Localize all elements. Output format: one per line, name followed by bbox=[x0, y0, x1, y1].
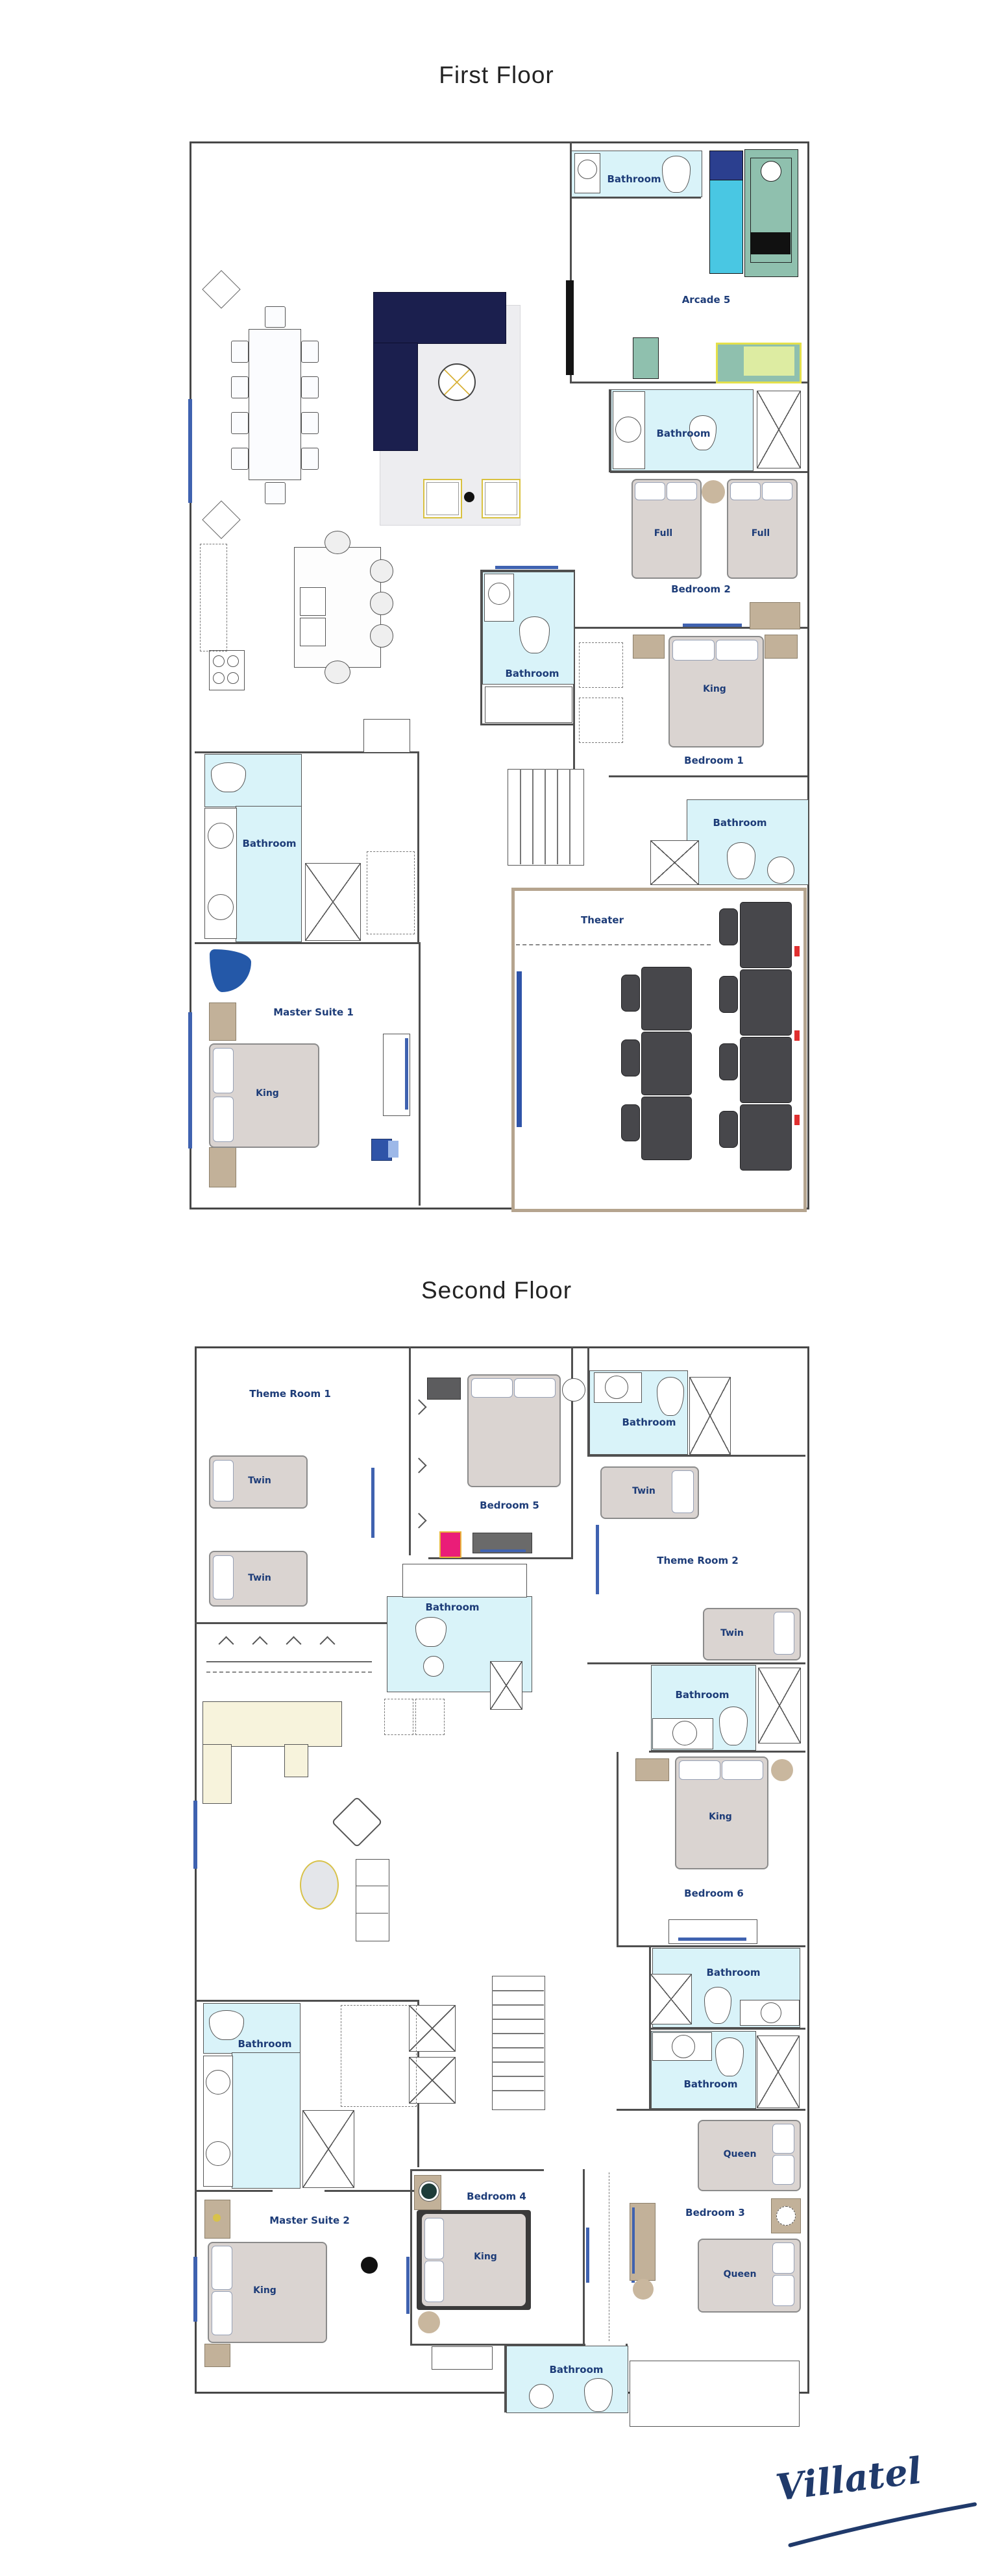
sconce bbox=[794, 1115, 800, 1125]
room-label-bathroom: Bathroom bbox=[425, 1601, 479, 1613]
room-label-theme-room-2: Theme Room 2 bbox=[657, 1555, 739, 1566]
pillow bbox=[424, 2261, 444, 2302]
wall bbox=[583, 2169, 585, 2344]
theater-seat bbox=[641, 1097, 692, 1160]
media-wall bbox=[566, 280, 574, 375]
desk-chair-arm bbox=[388, 1141, 398, 1158]
dartboard-icon bbox=[776, 2206, 796, 2226]
dryer bbox=[415, 1699, 445, 1735]
window bbox=[188, 399, 192, 503]
sofa bbox=[356, 1859, 389, 1941]
window bbox=[193, 1801, 197, 1869]
tv-strip bbox=[632, 2207, 635, 2274]
stair-tread bbox=[492, 2047, 544, 2048]
dining-chair bbox=[301, 341, 319, 363]
theater-seat bbox=[740, 1037, 792, 1103]
wall bbox=[410, 2169, 544, 2171]
bed-label-full: Full bbox=[752, 528, 770, 539]
closet-shelf bbox=[206, 1661, 372, 1662]
sink-icon bbox=[615, 417, 641, 443]
toilet-icon bbox=[704, 1987, 731, 2024]
dining-chair bbox=[265, 482, 286, 504]
tv-strip bbox=[480, 1549, 526, 1552]
loft-structure bbox=[284, 1744, 308, 1777]
theater-headrest bbox=[719, 1111, 738, 1148]
bathtub bbox=[485, 687, 572, 723]
pillow bbox=[772, 2155, 794, 2185]
stair-tread bbox=[492, 2004, 544, 2006]
dining-table bbox=[249, 329, 301, 480]
walk-in-closet bbox=[367, 851, 415, 934]
wall bbox=[609, 775, 807, 777]
dresser bbox=[635, 1758, 669, 1781]
stair-tread bbox=[492, 2090, 544, 2091]
room-label-bedroom-3: Bedroom 3 bbox=[685, 2207, 745, 2218]
dining-chair bbox=[231, 412, 249, 434]
pillow bbox=[213, 1048, 234, 1093]
tv-strip bbox=[678, 1938, 746, 1941]
room-label-bathroom: Bathroom bbox=[713, 817, 766, 829]
wall bbox=[195, 2000, 419, 2002]
bed-label-twin: Twin bbox=[632, 1486, 656, 1496]
bed-label-full: Full bbox=[654, 528, 672, 539]
pillow bbox=[672, 1470, 694, 1513]
oval-rug bbox=[300, 1860, 339, 1910]
sconce bbox=[794, 946, 800, 956]
floorplan-page: { "brand": { "logo_text": "Villatel" }, … bbox=[0, 0, 993, 2576]
shower-icon bbox=[302, 2110, 354, 2188]
theater-seat bbox=[740, 902, 792, 968]
loft-structure bbox=[202, 1744, 232, 1804]
room-label-bathroom: Bathroom bbox=[675, 1689, 729, 1701]
first-floor-title: First Floor bbox=[439, 62, 554, 89]
pillow bbox=[471, 1378, 513, 1398]
pillow bbox=[730, 482, 761, 500]
dresser bbox=[750, 602, 800, 629]
room-label-bathroom: Bathroom bbox=[656, 428, 710, 439]
shower-icon bbox=[757, 2035, 800, 2108]
stair-tread bbox=[492, 2019, 544, 2020]
bar-stool bbox=[370, 592, 393, 615]
theater-screen bbox=[517, 971, 522, 1127]
stair-tread bbox=[492, 2033, 544, 2034]
brand-logo: Villatel bbox=[769, 2445, 990, 2555]
wall bbox=[649, 1751, 805, 1753]
counter bbox=[200, 544, 227, 651]
loft-structure bbox=[202, 1701, 342, 1747]
nightstand bbox=[209, 1002, 236, 1041]
toilet-icon bbox=[662, 156, 691, 193]
stair-tread bbox=[492, 1990, 544, 1991]
bar-stool bbox=[325, 531, 350, 554]
theater-headrest bbox=[719, 1043, 738, 1080]
brand-logo-text: Villatel bbox=[774, 2449, 924, 2510]
dining-chair bbox=[265, 306, 286, 328]
room-label-bedroom-4: Bedroom 4 bbox=[467, 2191, 526, 2202]
pillow bbox=[772, 2124, 794, 2154]
shower-icon bbox=[650, 1974, 692, 2024]
nightstand bbox=[209, 1147, 236, 1187]
sink-icon bbox=[206, 2070, 230, 2095]
closet bbox=[579, 698, 623, 743]
sink-icon bbox=[605, 1376, 628, 1399]
round-rug bbox=[418, 2311, 440, 2333]
sink-icon bbox=[208, 823, 234, 849]
sectional-sofa bbox=[373, 343, 418, 451]
bed-label-king: King bbox=[474, 2252, 497, 2262]
wall bbox=[195, 1622, 389, 1624]
walk-in-closet bbox=[341, 2005, 417, 2107]
sink-icon bbox=[423, 1656, 444, 1677]
pillow bbox=[213, 1097, 234, 1142]
toilet-icon bbox=[519, 616, 550, 653]
pillow bbox=[679, 1760, 720, 1780]
wall bbox=[617, 1752, 619, 1945]
tv-strip bbox=[495, 566, 558, 569]
burner-icon bbox=[227, 672, 239, 684]
bar-stool bbox=[370, 624, 393, 648]
pillow bbox=[212, 2291, 232, 2335]
room-label-theme-room-1: Theme Room 1 bbox=[249, 1388, 331, 1400]
shower-icon bbox=[689, 1377, 731, 1455]
theater-seat bbox=[641, 1032, 692, 1095]
ottoman bbox=[482, 479, 521, 518]
pillow bbox=[672, 640, 715, 661]
sink-icon bbox=[761, 2002, 781, 2023]
window bbox=[193, 2257, 197, 2322]
wall bbox=[195, 942, 421, 944]
room-label-bathroom: Bathroom bbox=[706, 1967, 760, 1978]
island-sink bbox=[300, 618, 326, 646]
pillow bbox=[774, 1612, 794, 1655]
tv-strip bbox=[405, 1038, 408, 1110]
nightstand bbox=[765, 635, 798, 659]
arcade-machine bbox=[709, 151, 743, 181]
room-label-bathroom: Bathroom bbox=[238, 2038, 291, 2050]
master-bathroom-1 bbox=[236, 806, 302, 942]
wall bbox=[480, 723, 575, 725]
bar-stool bbox=[325, 661, 350, 684]
pillow bbox=[514, 1378, 556, 1398]
room-label-master-suite-1: Master Suite 1 bbox=[273, 1006, 354, 1018]
round-table bbox=[771, 1759, 793, 1781]
bed-label-twin: Twin bbox=[248, 1476, 271, 1486]
round-rug bbox=[702, 480, 725, 504]
dining-chair bbox=[231, 341, 249, 363]
shower-icon bbox=[758, 1668, 801, 1744]
wall bbox=[617, 2109, 805, 2111]
toilet-icon bbox=[211, 762, 246, 792]
shower-icon bbox=[650, 840, 699, 885]
wall bbox=[649, 2028, 805, 2030]
accent-dresser bbox=[439, 1531, 461, 1558]
theater-headrest bbox=[621, 1039, 640, 1076]
sofa-seam bbox=[356, 1886, 388, 1886]
wall bbox=[417, 751, 419, 943]
toilet-icon bbox=[584, 2378, 613, 2412]
wall bbox=[587, 1455, 805, 1457]
wall bbox=[325, 2190, 419, 2192]
stair-tread bbox=[520, 769, 521, 864]
round-rug bbox=[633, 2279, 654, 2300]
side-table bbox=[562, 1378, 585, 1402]
theater-seat bbox=[641, 967, 692, 1030]
breakfast-nook bbox=[363, 719, 410, 753]
tv-strip bbox=[596, 1525, 599, 1594]
sectional-sofa bbox=[373, 292, 506, 344]
shower-icon bbox=[757, 391, 801, 468]
game-table-band bbox=[750, 232, 791, 254]
entry-porch bbox=[630, 2361, 800, 2427]
wall bbox=[610, 471, 807, 473]
toilet-icon bbox=[715, 2037, 744, 2076]
stair-tread bbox=[492, 2076, 544, 2077]
lamp-icon bbox=[213, 2214, 221, 2222]
toilet-icon bbox=[209, 2010, 244, 2040]
bed-label-queen: Queen bbox=[724, 2149, 757, 2159]
second-floor-title: Second Floor bbox=[421, 1277, 572, 1304]
theater-headrest bbox=[621, 975, 640, 1012]
room-label-bedroom-6: Bedroom 6 bbox=[684, 1888, 744, 1899]
stair-tread bbox=[569, 769, 570, 864]
room-label-bathroom: Bathroom bbox=[242, 838, 296, 849]
dining-chair bbox=[301, 448, 319, 470]
wall bbox=[410, 2169, 412, 2344]
arcade-cabinet bbox=[633, 337, 659, 379]
tv-strip bbox=[683, 624, 742, 627]
toilet-icon bbox=[727, 842, 755, 879]
stair-tread bbox=[557, 769, 558, 864]
closet-divider bbox=[609, 2172, 609, 2341]
room-label-bedroom-1: Bedroom 1 bbox=[684, 755, 744, 766]
tv-strip bbox=[586, 2228, 589, 2283]
pillow bbox=[772, 2275, 794, 2306]
linen-closet bbox=[490, 1661, 522, 1710]
room-label-bathroom: Bathroom bbox=[549, 2364, 603, 2376]
speaker-icon bbox=[419, 2181, 439, 2201]
room-label-bathroom: Bathroom bbox=[683, 2078, 737, 2090]
sink-icon bbox=[767, 857, 794, 884]
wall bbox=[195, 2190, 273, 2192]
burner-icon bbox=[213, 655, 225, 667]
dining-chair bbox=[301, 412, 319, 434]
theater-headrest bbox=[719, 976, 738, 1013]
wall bbox=[571, 197, 701, 199]
toilet-icon bbox=[415, 1617, 447, 1647]
pillow bbox=[635, 482, 665, 500]
stair-tread bbox=[532, 769, 533, 864]
theater-headrest bbox=[621, 1104, 640, 1141]
room-label-master-suite-2: Master Suite 2 bbox=[269, 2215, 350, 2226]
dining-chair bbox=[231, 448, 249, 470]
wall bbox=[587, 1662, 805, 1664]
game-pad-inner bbox=[744, 346, 794, 376]
brand-logo-underline bbox=[785, 2501, 981, 2551]
bed-label-king: King bbox=[256, 1088, 279, 1099]
sink-icon bbox=[672, 1721, 697, 1745]
theater-seat bbox=[740, 969, 792, 1036]
sink-icon bbox=[206, 2141, 230, 2166]
sink-icon bbox=[529, 2384, 554, 2409]
pillow bbox=[667, 482, 697, 500]
bed-label-king: King bbox=[709, 1812, 732, 1822]
room-label-bedroom-5: Bedroom 5 bbox=[480, 1500, 539, 1511]
sink-icon bbox=[488, 583, 510, 605]
wall bbox=[419, 942, 421, 1206]
tv-console bbox=[427, 1378, 461, 1400]
pillow bbox=[762, 482, 792, 500]
sofa-seam bbox=[356, 1913, 388, 1914]
room-label-bedroom-2: Bedroom 2 bbox=[671, 583, 731, 595]
island-sink bbox=[300, 587, 326, 616]
game-table-light bbox=[761, 161, 781, 182]
side-table bbox=[464, 492, 474, 502]
toilet-icon bbox=[719, 1707, 748, 1745]
bed-label-twin: Twin bbox=[248, 1573, 271, 1583]
bed-label-king: King bbox=[253, 2285, 276, 2296]
bed-label-queen: Queen bbox=[724, 2269, 757, 2279]
floor-lamp bbox=[361, 2257, 378, 2274]
sconce bbox=[794, 1030, 800, 1041]
bar-stool bbox=[370, 559, 393, 583]
bathtub bbox=[402, 1564, 527, 1598]
pillow bbox=[722, 1760, 763, 1780]
bed-label-king: King bbox=[703, 684, 726, 694]
room-label-theater: Theater bbox=[581, 914, 624, 926]
pillow bbox=[424, 2218, 444, 2259]
sink-icon bbox=[578, 160, 597, 179]
washer bbox=[384, 1699, 413, 1735]
media-console bbox=[432, 2346, 493, 2370]
room-label-bathroom: Bathroom bbox=[505, 668, 559, 679]
stair-tread bbox=[492, 2061, 544, 2063]
pillow bbox=[212, 2246, 232, 2290]
room-label-arcade-5: Arcade 5 bbox=[682, 294, 731, 306]
burner-icon bbox=[227, 655, 239, 667]
dining-chair bbox=[231, 376, 249, 398]
stair-tread bbox=[545, 769, 546, 864]
ottoman bbox=[423, 479, 462, 518]
theater-headrest bbox=[719, 908, 738, 945]
bed-label-twin: Twin bbox=[720, 1628, 744, 1638]
room-label-bathroom: Bathroom bbox=[607, 173, 661, 185]
master-bathroom-2 bbox=[232, 2052, 300, 2189]
sink-icon bbox=[672, 2035, 695, 2058]
closet-shelf bbox=[206, 1671, 372, 1673]
window bbox=[188, 1012, 192, 1148]
wall bbox=[617, 1945, 805, 1947]
burner-icon bbox=[213, 672, 225, 684]
wall bbox=[409, 1346, 411, 1555]
shower-icon bbox=[305, 863, 361, 941]
coffee-table bbox=[438, 363, 476, 401]
theater-soffit bbox=[516, 944, 711, 945]
pillow bbox=[213, 1555, 234, 1599]
pillow bbox=[772, 2242, 794, 2274]
staircase bbox=[508, 769, 584, 866]
sink-icon bbox=[208, 894, 234, 920]
tv-strip bbox=[371, 1468, 374, 1538]
toilet-icon bbox=[657, 1377, 684, 1416]
nightstand bbox=[633, 635, 665, 659]
pillow bbox=[213, 1460, 234, 1501]
nightstand bbox=[204, 2344, 230, 2367]
closet bbox=[579, 642, 623, 688]
room-label-bathroom: Bathroom bbox=[622, 1416, 676, 1428]
theater-seat bbox=[740, 1104, 792, 1171]
dining-chair bbox=[301, 376, 319, 398]
pillow bbox=[716, 640, 758, 661]
tv-strip bbox=[406, 2257, 410, 2314]
arcade-machine bbox=[709, 180, 743, 274]
